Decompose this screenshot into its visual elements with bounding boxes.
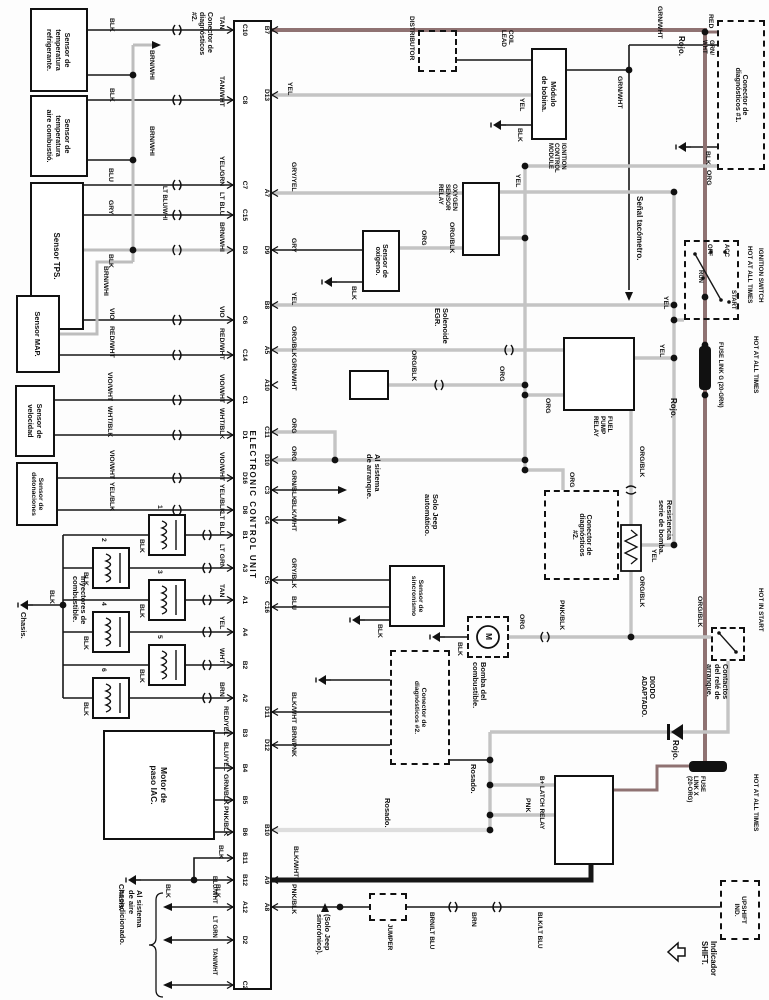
ecu-pin-A5: A5 (263, 346, 270, 354)
label: IGNITION CONTROL MODULE (546, 143, 566, 173)
ecu-pin-B12: B12 (241, 874, 248, 886)
map-sensor: Sensor MAP. (16, 295, 60, 373)
arrowhead-icon (152, 41, 161, 49)
label: VIO/WHT (107, 450, 115, 479)
label: VIO/WHT (217, 452, 225, 481)
label: PNK/BLK (221, 806, 229, 836)
label: ORG (704, 170, 712, 185)
junction-dot (487, 782, 494, 789)
junction-dot (522, 382, 529, 389)
label: RED/WHT (107, 326, 115, 358)
label: ORG/BLK (637, 576, 645, 607)
label: GRN/ WHT (701, 40, 714, 55)
label: BLK (163, 884, 171, 898)
label: Inyectores de combustible. (70, 576, 87, 624)
ground-icon (324, 277, 332, 287)
ecu-pin-B1: B1 (241, 531, 248, 539)
label: Conector de diagnósticos #2. (190, 12, 213, 55)
label: Contactos del relé de arranque. (705, 664, 729, 700)
ignition-module: Módulode bobina. (531, 48, 567, 140)
label: FUSE LINK G (20-GRN) (716, 342, 723, 408)
label: GRY (289, 238, 297, 252)
ecu-pin-D11: D11 (263, 706, 270, 718)
junction-dot (337, 904, 344, 911)
label: Rosado. (383, 798, 391, 828)
label: TAN (217, 16, 225, 29)
label: BRN/WHI (147, 50, 155, 80)
label: BRN/WHI (147, 126, 155, 156)
label: GRN/WHT (289, 358, 297, 390)
label: BLK (137, 539, 145, 553)
label: BLK (81, 636, 89, 650)
label: OFF (705, 244, 712, 256)
arrowhead-icon (163, 936, 172, 944)
label: 1 (155, 505, 163, 509)
label: GRY/YEL (289, 162, 297, 192)
label: HOT AT ALL TIMES (752, 336, 759, 393)
ecu-pin-D16: D16 (241, 472, 248, 484)
label: START (729, 290, 736, 310)
label: BLK/LT BLU (536, 912, 543, 949)
label: ORG (289, 418, 297, 433)
label: FUSE LINK X (20-ORG) (685, 776, 705, 802)
air-temp-sensor-label: aire combustió. (46, 109, 55, 162)
label: DIODO ADAPTADO. (639, 676, 655, 717)
junction-dot (522, 457, 529, 464)
label: VIO (217, 306, 225, 318)
label: BLK (375, 624, 383, 638)
ground-icon (352, 615, 360, 625)
label: BLK (137, 604, 145, 618)
label: RUN (696, 270, 703, 283)
junction-dot (191, 877, 198, 884)
jumper (369, 893, 407, 921)
ecu-title: ELECTRONIC CONTROL UNIT (248, 430, 257, 579)
junction-dot (671, 302, 678, 309)
label: Al sistema de aire acondicionado. (118, 890, 143, 945)
injector-icon (93, 678, 129, 718)
distributor (418, 30, 457, 72)
label: WHT/BLK (105, 406, 113, 437)
label: GRY/BLK (289, 558, 297, 588)
label: VIO/WHT (105, 372, 113, 401)
ground-icon (432, 632, 440, 642)
junction-dot (130, 72, 137, 79)
label: ACC (722, 244, 729, 257)
knock-sensor-label: Sensor de (37, 478, 44, 511)
ecu-pin-B8: B8 (263, 301, 270, 309)
ecu-pin-B3: B3 (241, 729, 248, 737)
diagnostic-connector-1-label: Conector de (741, 75, 748, 116)
fuse-link-x-icon (689, 761, 727, 772)
ecu-pin-C16: C16 (263, 601, 270, 613)
arrowhead-icon (338, 486, 347, 494)
label: YEL (649, 549, 657, 562)
shift-arrow-icon (668, 943, 685, 961)
label: ORG/BLK (289, 326, 297, 357)
label: BRN/LT BLU (428, 912, 435, 949)
label: BLK (107, 18, 115, 32)
label: LT GRN (210, 916, 217, 938)
ecu-pin-C7: C7 (241, 181, 248, 189)
junction-dot (487, 812, 494, 819)
fuse-link-g-icon (699, 346, 711, 390)
label: Resistencia serie de bomba. (657, 500, 673, 555)
junction-dot (522, 163, 529, 170)
label: Al sistema de arranque. (364, 454, 381, 499)
label: GRN/BLK (221, 774, 229, 805)
diagnostic-connector-1: Conector dediagnósticos #1. (717, 20, 765, 170)
ecu-pin-C4: C4 (263, 516, 270, 524)
junction-dot (130, 157, 137, 164)
label: BLK/WHT (289, 692, 297, 723)
junction-dot (522, 467, 529, 474)
pin-chevron-icon (272, 382, 278, 389)
label: YEL/BLK (107, 482, 115, 511)
label: B+ LATCH RELAY (538, 776, 545, 829)
injector-icon (149, 645, 185, 685)
ecu-pin-B4: B4 (241, 764, 248, 772)
oxygen-sensor: Sensor deoxigeno. (362, 230, 400, 292)
oxygen-sensor-label: oxigeno. (374, 247, 381, 276)
injector-icon (149, 580, 185, 620)
label: 5 (155, 635, 163, 639)
label: PNK/BLK (289, 884, 297, 914)
iac-motor: Motor depaso IAC. (103, 730, 215, 840)
ecu-pin-A1: A1 (241, 596, 248, 604)
label: LT BLU/WHI (160, 186, 167, 220)
junction-dot (671, 189, 678, 196)
ecu-pin-B6: B6 (241, 828, 248, 836)
map-sensor-label: Sensor MAP. (34, 311, 43, 356)
label: ORG (543, 398, 551, 413)
oxygen-sensor-label: Sensor de (381, 244, 388, 278)
ecu-pin-A8: A8 (263, 903, 270, 911)
ecu-pin-D9: D9 (263, 246, 270, 254)
label: COIL LEAD (499, 30, 513, 47)
sync-sensor: Sensor desincronismo (389, 565, 445, 627)
ecu-pin-A12: A12 (241, 901, 248, 913)
label: RED/WHT (217, 328, 225, 360)
label: BRN/WHI (101, 266, 109, 296)
ecu-pin-C14: C14 (241, 349, 248, 361)
label: FUEL PUMP RELAY (592, 416, 613, 437)
label: Rojo. (668, 398, 677, 418)
ignition-module-label: Módulo (549, 81, 558, 107)
label: YEL/BLK (217, 484, 225, 513)
label: ORG (567, 472, 575, 487)
label: YEL (661, 296, 669, 309)
label: Indicador SHIFT. (700, 941, 717, 976)
label: ORG (419, 230, 427, 245)
label: BLK (47, 590, 55, 604)
oxygen-sensor-relay (462, 182, 500, 256)
ecu-pin-C1: C1 (241, 396, 248, 404)
ignition-module-label: de bobina. (540, 76, 549, 112)
ecu-pin-D3: D3 (241, 246, 248, 254)
injector-icon (93, 612, 129, 652)
label: WHT/BLK (217, 408, 225, 439)
label: ORG (289, 446, 297, 461)
label: ORG (497, 366, 505, 381)
diagnostic-connector-2-lower-label: Conector de (420, 688, 427, 728)
label: YEL/GRN (217, 156, 225, 186)
diagnostic-connector-1-label: diagnósticos #1. (734, 68, 741, 123)
diagnostic-connector-2-lower: Conector dediagnósticos #2. (390, 650, 450, 765)
label: BRN (217, 682, 225, 697)
label: YEL (517, 98, 525, 111)
ecu-pin-D1: D1 (241, 431, 248, 439)
junction-dot (671, 355, 678, 362)
ground-icon (128, 875, 136, 885)
junction-dot (487, 827, 494, 834)
junction-dot (130, 247, 137, 254)
label: YEL (513, 174, 521, 187)
junction-dot (671, 317, 678, 324)
ecu-pin-B11: B11 (241, 852, 248, 864)
label: BRN (469, 912, 477, 927)
sync-sensor-label: sincronismo (410, 576, 417, 616)
label: TAN/WHT (210, 948, 217, 975)
ecu-pin-C2: C2 (241, 981, 248, 989)
label: 2 (99, 538, 107, 542)
label: BRN/PNK (289, 726, 297, 757)
ecu-pin-B2: B2 (241, 661, 248, 669)
speed-sensor-label: velocidad (26, 404, 35, 437)
label: LT BLU (217, 512, 225, 536)
label: YEL (289, 292, 297, 305)
ground-icon (20, 600, 28, 610)
ecu-pin-A3: A3 (241, 564, 248, 572)
label: Rosado. (469, 764, 477, 794)
coolant-temp-sensor-label: temperatura (55, 29, 64, 71)
label: RED (706, 14, 714, 28)
ecu-pin-B10: B10 (263, 824, 270, 836)
ecu-pin-A9: A9 (263, 876, 270, 884)
label: BLK (703, 151, 711, 165)
coolant-temp-sensor: Sensor detemperaturarefrigerante. (30, 8, 88, 92)
junction-dot (522, 235, 529, 242)
junction-dot (702, 29, 709, 36)
ecu-pin-C11: C11 (263, 426, 270, 438)
label: IGNITION SWITCH (757, 248, 764, 303)
ecu-pin-A4: A4 (241, 628, 248, 636)
label: JUMPER (386, 924, 393, 950)
arrowhead-icon (625, 292, 633, 301)
label: HOT AT ALL TIMES (746, 246, 753, 303)
coolant-temp-sensor-label: Sensor de (64, 33, 73, 68)
label: ORG/BLK (695, 596, 703, 627)
label: ORG/BLK (637, 446, 645, 477)
label: TAN (217, 584, 225, 597)
arrowhead-icon (163, 981, 172, 989)
ground-icon (678, 142, 686, 152)
label: BLK (137, 669, 145, 683)
resistor-icon (621, 525, 641, 571)
iac-motor-label: paso IAC. (149, 765, 159, 804)
label: OXYGEN SENSOR RELAY (437, 184, 458, 211)
label: Solo Jeep automático. (422, 494, 439, 536)
label: BLK (107, 88, 115, 102)
ground-icon (318, 675, 326, 685)
label: PNK (523, 798, 531, 812)
label: RED/YEL (221, 706, 229, 735)
label: Bomba del combustible. (470, 662, 487, 708)
sync-sensor-label: Sensor de (417, 580, 424, 613)
label: BLU (106, 168, 114, 182)
upshift-indicator-label: IND. (733, 904, 740, 917)
label: BLK (81, 702, 89, 716)
wire (525, 470, 563, 490)
ecu-pin-D2: D2 (241, 936, 248, 944)
b-plus-latch-relay (554, 775, 614, 865)
label: TAN/WHT (217, 76, 225, 107)
label: BLK (216, 845, 224, 859)
junction-dot (332, 457, 339, 464)
label: BLU/YEL (221, 742, 229, 771)
ecu-pin-A2: A2 (241, 694, 248, 702)
label: WHT (217, 648, 225, 663)
label: LT GRN (217, 544, 225, 569)
label: M (483, 633, 493, 640)
arrowhead-icon (163, 903, 172, 911)
junction-dot (702, 392, 709, 399)
speed-sensor: Sensor develocidad (15, 385, 55, 457)
starter-relay-contacts (711, 627, 745, 661)
injector-icon (149, 515, 185, 555)
iac-motor-label: Motor de (159, 767, 169, 803)
label: PNK/BLK (557, 600, 565, 630)
diagnostic-connector-2-lower-label: diagnósticos #2. (413, 681, 420, 734)
label: HOT AT ALL TIMES (752, 774, 759, 831)
label: BLK (515, 128, 523, 142)
air-temp-sensor-label: Sensor de (64, 119, 73, 154)
label: GRN/WHT (615, 76, 623, 108)
label: VIO/WHT (217, 374, 225, 403)
label: GRY (106, 200, 114, 214)
label: HOT IN START (757, 588, 764, 632)
label: ORG/BLK (447, 222, 455, 253)
ecu-pin-A10: A10 (263, 379, 270, 391)
air-temp-sensor-label: temperatura (55, 115, 64, 157)
label: 6 (99, 668, 107, 672)
junction-dot (60, 602, 67, 609)
ecu-pin-A7: A7 (263, 189, 270, 197)
junction-dot (626, 67, 633, 74)
upshift-indicator: UPSHIFTIND. (720, 880, 760, 940)
ecu-pin-D8: D8 (241, 506, 248, 514)
ecu-pin-C10: C10 (241, 24, 248, 36)
wire (272, 865, 591, 880)
diagnostic-connector-2-upper-label: Conector de (585, 515, 592, 556)
diagnostic-connector-2-upper-label: diagnósticos (578, 513, 585, 556)
diode-icon (671, 724, 683, 740)
knock-sensor-label: detonaciones (30, 472, 37, 516)
rotated-schematic-canvas: ELECTRONIC CONTROL UNITSensor detemperat… (0, 0, 769, 1000)
wire-layer (0, 0, 769, 1000)
label: BLK/WHT (289, 500, 297, 531)
label: Solenoide EGR. (432, 308, 449, 344)
label: Señal tacómetro. (634, 196, 643, 260)
label: YEL (285, 82, 293, 95)
label: ORG/BLK (409, 350, 417, 381)
knock-sensor: Sensor dedetonaciones (16, 462, 58, 526)
speed-sensor-label: Sensor de (35, 404, 44, 439)
fuel-pump-relay (563, 337, 635, 411)
ecu-pin-C15: C15 (241, 209, 248, 221)
label: YEL (657, 344, 665, 357)
wire (272, 432, 335, 460)
ecu-pin-C5: C5 (263, 576, 270, 584)
ecu-pin-C8: C8 (241, 96, 248, 104)
brace-icon (149, 893, 163, 997)
upshift-indicator-label: UPSHIFT (740, 896, 747, 924)
label: DISTRIBUTOR (408, 16, 415, 60)
diagnostic-connector-2-upper: Conector dediagnósticos#2. (544, 490, 619, 580)
ecu-pin-B5: B5 (241, 796, 248, 804)
ecu-pin-B7: B7 (263, 26, 270, 34)
wiring-diagram-page: ELECTRONIC CONTROL UNITSensor detemperat… (0, 0, 769, 1000)
ecu-pin-D12: D12 (263, 739, 270, 751)
label: BRN/WHI (217, 222, 225, 252)
injector-icon (93, 548, 129, 588)
junction-dot (628, 634, 635, 641)
label: GRN/WHT (655, 6, 663, 38)
junction-dot (487, 757, 494, 764)
label: BLK (455, 642, 463, 656)
label: YEL (217, 616, 225, 629)
egr-solenoid (349, 370, 389, 400)
junction-dot (522, 392, 529, 399)
label: LT BLU (217, 192, 225, 216)
ecu-pin-C3: C3 (263, 486, 270, 494)
label: Chasis. (19, 612, 27, 639)
coolant-temp-sensor-label: refrigerante. (46, 29, 55, 71)
label: Rojo. (670, 740, 679, 760)
label: BLK/WHT (291, 846, 299, 877)
ecu-pin-D13: D13 (263, 89, 270, 101)
ecu-pin-C6: C6 (241, 316, 248, 324)
label: BLU (289, 596, 297, 610)
label: VIO (107, 308, 115, 320)
ecu-box: ELECTRONIC CONTROL UNIT (233, 20, 272, 990)
label: GRN/BLK (289, 470, 297, 501)
ground-icon (493, 120, 501, 130)
label: (Solo Jeep sincrónico). (315, 914, 331, 955)
label: BLK (349, 286, 357, 300)
tps-sensor-label: Sensor TPS. (53, 232, 62, 279)
label: BLU/WHT (210, 876, 217, 904)
label: Rojo. (676, 36, 685, 56)
ecu-pin-D10: D10 (263, 454, 270, 466)
label: 4 (99, 602, 107, 606)
label: ORG (517, 614, 525, 629)
arrowhead-icon (338, 516, 347, 524)
label: 3 (155, 570, 163, 574)
air-temp-sensor: Sensor detemperaturaaire combustió. (30, 95, 88, 177)
wire (490, 661, 728, 732)
diagnostic-connector-2-upper-label: #2. (571, 530, 578, 540)
